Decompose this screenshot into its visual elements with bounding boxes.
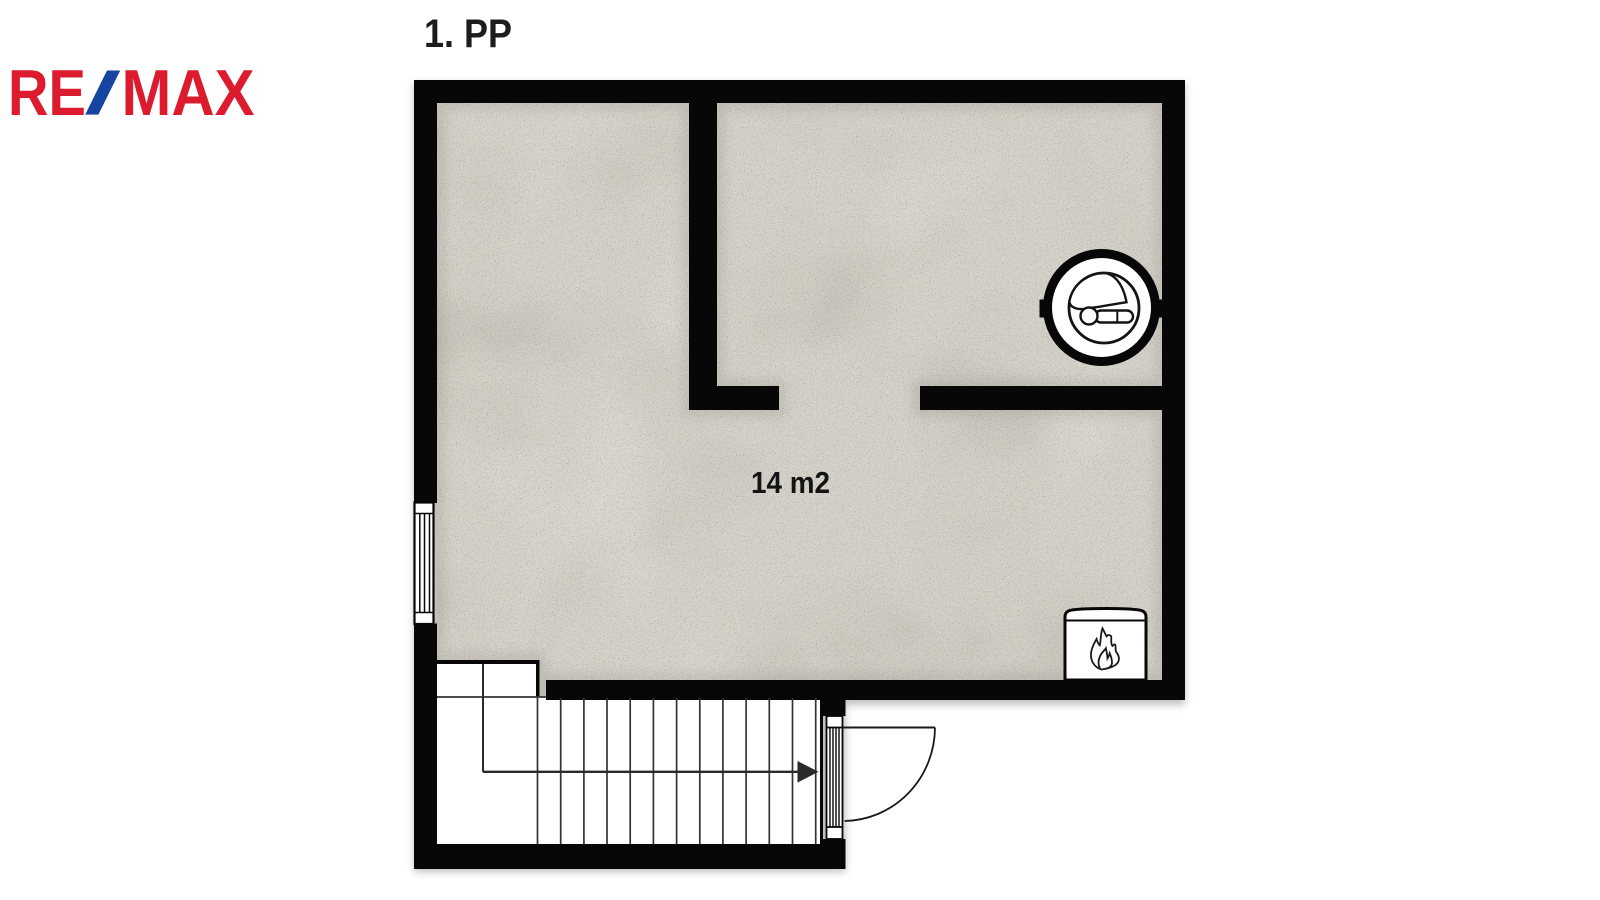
- svg-text:RE: RE: [8, 56, 86, 129]
- svg-text:1. PP: 1. PP: [424, 12, 512, 56]
- svg-text:MAX: MAX: [122, 56, 255, 129]
- svg-text:14 m2: 14 m2: [751, 465, 830, 500]
